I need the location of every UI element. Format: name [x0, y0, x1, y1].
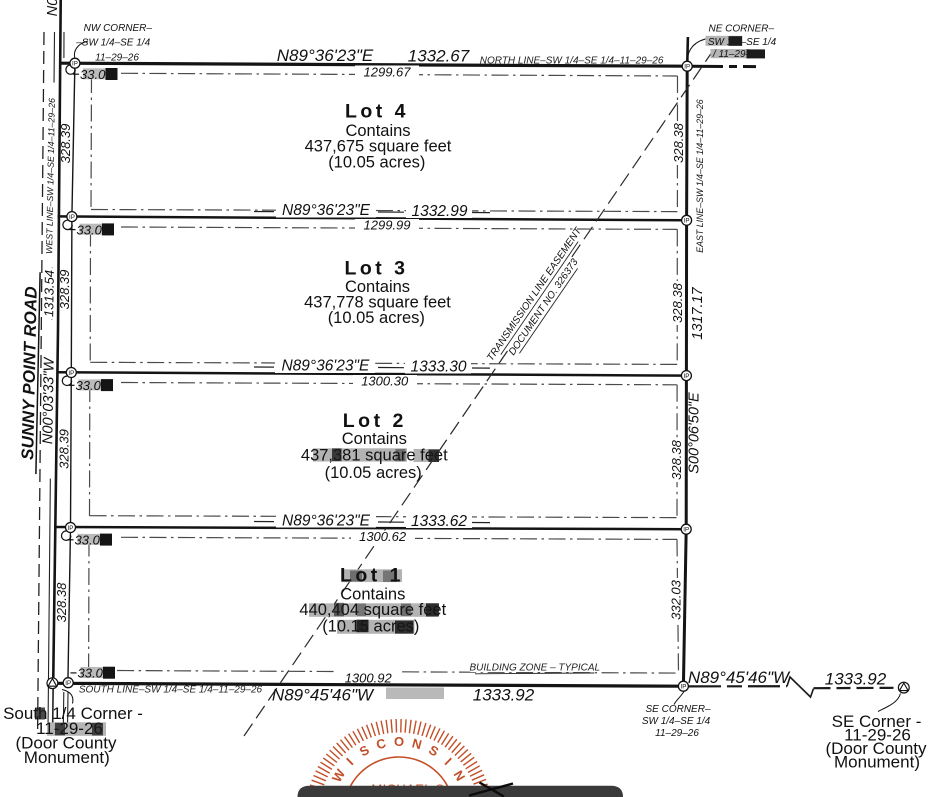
svg-text:Monument): Monument): [834, 752, 920, 771]
svg-text:1300.30: 1300.30: [361, 374, 409, 389]
svg-text:IP: IP: [69, 214, 75, 221]
svg-text:N89°36'23"E: N89°36'23"E: [282, 202, 371, 219]
svg-text:IP: IP: [683, 527, 689, 534]
svg-text:IP: IP: [68, 525, 74, 532]
svg-text:1299.67: 1299.67: [364, 65, 412, 80]
svg-text:1333.62: 1333.62: [411, 513, 467, 530]
svg-text:328.38: 328.38: [670, 282, 685, 323]
svg-text:SOUTH LINE–SW 1/4–SE 1/4–11–29: SOUTH LINE–SW 1/4–SE 1/4–11–29–26: [79, 684, 263, 695]
svg-text:332.03: 332.03: [669, 579, 684, 620]
svg-text:1313.54: 1313.54: [41, 270, 57, 317]
svg-text:I: I: [442, 755, 455, 768]
svg-text:Lot 4: Lot 4: [345, 101, 409, 123]
svg-text:–SW 1/4–SE 1/4: –SW 1/4–SE 1/4: [75, 38, 150, 49]
svg-text:I: I: [343, 755, 356, 768]
svg-text:1317.17: 1317.17: [690, 286, 706, 339]
svg-text:440,404 square feet: 440,404 square feet: [299, 601, 446, 619]
svg-text:Monument): Monument): [24, 748, 110, 767]
svg-text:Lot 2: Lot 2: [343, 410, 407, 432]
svg-text:Lot 3: Lot 3: [344, 258, 408, 280]
svg-text:N89°45'46"W: N89°45'46"W: [272, 686, 375, 705]
svg-text:NORTH LINE–SW 1/4–SE 1/4–11–29: NORTH LINE–SW 1/4–SE 1/4–11–29–26: [480, 56, 664, 67]
svg-text:SW 1/4–SE 1/4: SW 1/4–SE 1/4: [708, 37, 777, 48]
svg-text:N89°36'23"E: N89°36'23"E: [281, 358, 370, 375]
svg-text:S: S: [357, 742, 372, 759]
svg-text:N: N: [410, 735, 423, 752]
svg-text:N89°36'23"E: N89°36'23"E: [277, 46, 374, 65]
svg-text:WEST LINE–SW 1/4–SE 1/4–11–29–: WEST LINE–SW 1/4–SE 1/4–11–29–26: [44, 98, 57, 254]
svg-text:EAST LINE–SW 1/4–SE 1/4–11–29–: EAST LINE–SW 1/4–SE 1/4–11–29–26: [695, 99, 705, 252]
svg-text:1300.92: 1300.92: [345, 671, 393, 686]
svg-text:IP: IP: [683, 373, 689, 380]
svg-text:(10.05 acres): (10.05 acres): [328, 309, 425, 327]
svg-text:11–29–26: 11–29–26: [655, 728, 699, 739]
svg-text:O: O: [394, 734, 404, 749]
svg-text:328.38: 328.38: [671, 122, 686, 163]
svg-text:1333.92: 1333.92: [473, 686, 535, 705]
svg-text:IP: IP: [65, 680, 71, 687]
svg-text:1332.99: 1332.99: [411, 203, 467, 220]
svg-text:S: S: [426, 742, 441, 759]
svg-text:IP: IP: [684, 218, 690, 225]
svg-text:1333.92: 1333.92: [825, 670, 887, 689]
svg-text:IP: IP: [68, 370, 74, 377]
svg-text:328.38: 328.38: [54, 582, 69, 623]
svg-text:328.38: 328.38: [669, 439, 684, 480]
svg-text:1300.62: 1300.62: [359, 529, 407, 544]
svg-text:328.39: 328.39: [58, 124, 73, 164]
svg-text:(10.05 acres): (10.05 acres): [325, 464, 422, 482]
svg-text:1299.99: 1299.99: [364, 218, 411, 233]
svg-text:Contains: Contains: [342, 430, 407, 448]
svg-text:11–29–26: 11–29–26: [95, 52, 139, 63]
svg-text:N00°03'33"W: N00°03'33"W: [40, 356, 58, 444]
svg-text:SW 1/4–SE 1/4: SW 1/4–SE 1/4: [642, 716, 711, 727]
svg-text:S00°06'50"E: S00°06'50"E: [687, 392, 703, 474]
svg-text:IP: IP: [680, 684, 686, 691]
svg-text:NW CORNER–: NW CORNER–: [84, 23, 153, 34]
svg-text:TRANSMISSION LINE EASEMENT: TRANSMISSION LINE EASEMENT: [485, 225, 584, 363]
svg-text:328.39: 328.39: [57, 270, 72, 310]
svg-text:437,381 square feet: 437,381 square feet: [301, 447, 448, 465]
svg-text:IP: IP: [684, 64, 690, 71]
svg-text:C: C: [375, 735, 388, 752]
svg-text:N89°36'23"E: N89°36'23"E: [282, 512, 371, 529]
svg-text:NE CORNER–: NE CORNER–: [709, 23, 775, 34]
svg-text:N0: N0: [45, 0, 61, 16]
svg-text:N: N: [451, 768, 469, 784]
svg-text:IP: IP: [72, 61, 78, 68]
svg-text:1332.67: 1332.67: [408, 46, 470, 65]
svg-text:N89°45'46"W: N89°45'46"W: [688, 668, 791, 687]
svg-text:328.39: 328.39: [57, 429, 72, 469]
svg-text:1333.30: 1333.30: [410, 358, 466, 375]
svg-text:BUILDING ZONE – TYPICAL: BUILDING ZONE – TYPICAL: [470, 663, 601, 674]
svg-text:(10.05 acres): (10.05 acres): [328, 154, 425, 172]
svg-text:SE CORNER–: SE CORNER–: [645, 704, 710, 715]
